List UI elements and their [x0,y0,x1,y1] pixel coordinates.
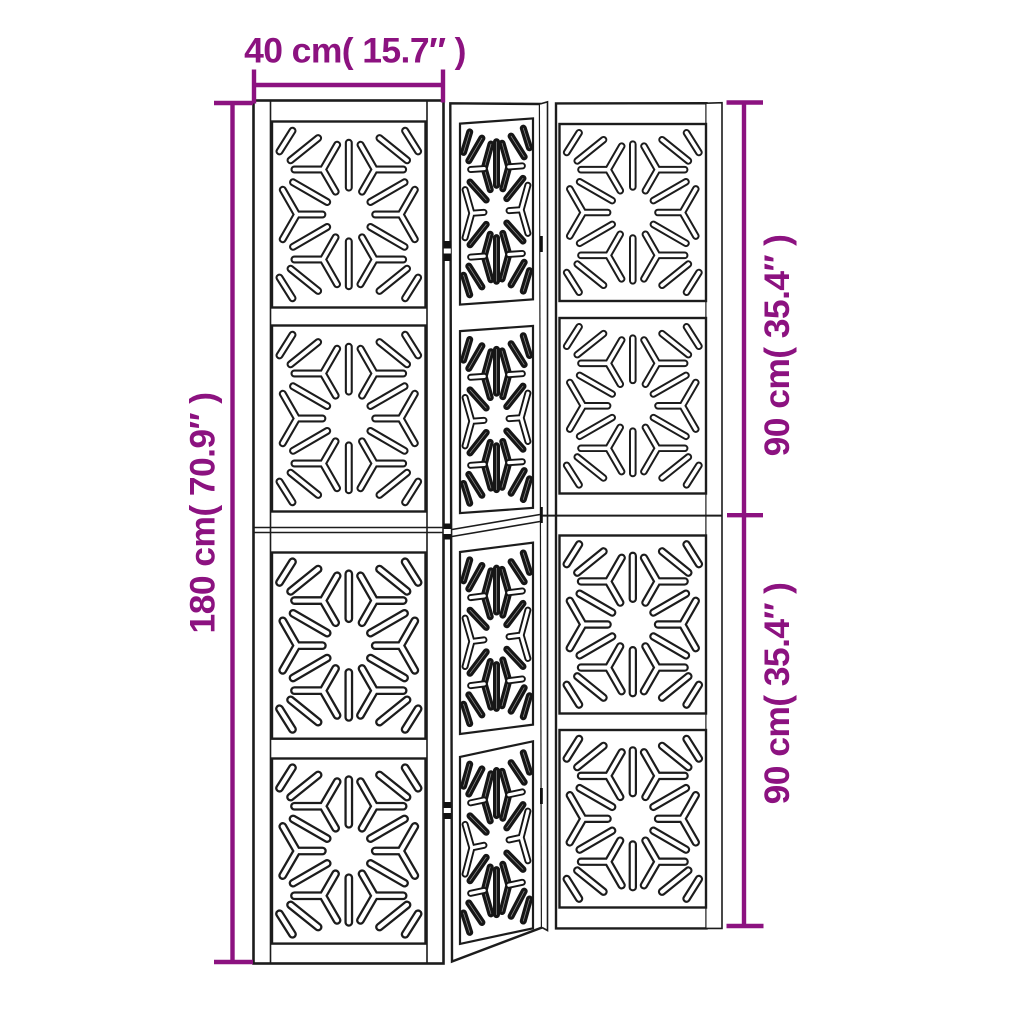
svg-text:90 cm( 35.4″ ): 90 cm( 35.4″ ) [757,235,797,457]
svg-text:180 cm( 70.9″ ): 180 cm( 70.9″ ) [183,393,223,634]
svg-text:90 cm( 35.4″ ): 90 cm( 35.4″ ) [757,583,797,805]
svg-text:40 cm( 15.7″ ): 40 cm( 15.7″ ) [244,31,466,71]
